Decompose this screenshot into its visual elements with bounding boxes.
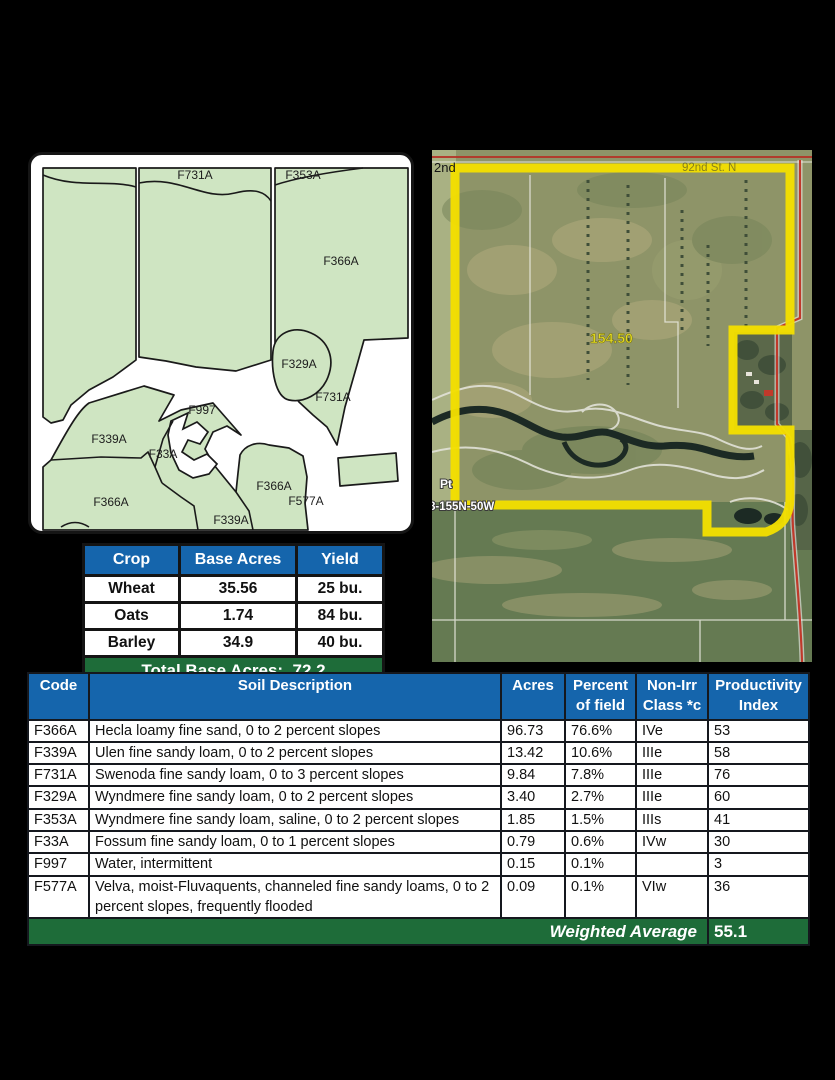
section-township-range-label: 8-155N-50W (432, 501, 494, 513)
table-cell: 3 (708, 853, 809, 875)
table-cell (636, 853, 708, 875)
soil-code-label: F577A (288, 494, 323, 508)
crop-table-header-row: Crop Base Acres Yield (84, 545, 384, 576)
table-cell: IIIe (636, 742, 708, 764)
table-cell: Barley (84, 630, 180, 657)
table-cell: Wyndmere fine sandy loam, saline, 0 to 2… (89, 809, 501, 831)
soil-code-label: F339A (213, 513, 248, 527)
table-cell: 0.1% (565, 853, 636, 875)
table-row: Oats1.7484 bu. (84, 603, 384, 630)
soil-code-label: F33A (149, 447, 178, 461)
street-label-left: 2nd (434, 160, 456, 175)
table-cell: 2.7% (565, 786, 636, 808)
point-label: Pt (440, 477, 452, 491)
table-cell: 36 (708, 876, 809, 919)
crop-table-body: Wheat35.5625 bu.Oats1.7484 bu.Barley34.9… (84, 576, 384, 657)
table-cell: 76.6% (565, 720, 636, 742)
table-row: F329AWyndmere fine sandy loam, 0 to 2 pe… (28, 786, 809, 808)
table-cell: Oats (84, 603, 180, 630)
soil-table-body: F366AHecla loamy fine sand, 0 to 2 perce… (28, 720, 809, 919)
table-row: F33AFossum fine sandy loam, 0 to 1 perce… (28, 831, 809, 853)
weighted-average-row: Weighted Average 55.1 (28, 918, 809, 945)
table-cell: IVe (636, 720, 708, 742)
table-cell: F997 (28, 853, 89, 875)
soil-code-label: F997 (188, 403, 216, 417)
table-cell: 60 (708, 786, 809, 808)
table-cell: 35.56 (180, 576, 297, 603)
column-header: Yield (297, 545, 384, 576)
soil-code-label: F353A (285, 168, 320, 182)
table-cell: 30 (708, 831, 809, 853)
table-cell: 0.79 (501, 831, 565, 853)
soil-map-panel: F731A F353A F366A F329A F731A F997 F339A… (28, 152, 414, 534)
soil-polygon (338, 453, 398, 486)
table-cell: 1.85 (501, 809, 565, 831)
column-header: Non-Irr Class *c (636, 673, 708, 720)
table-cell: F339A (28, 742, 89, 764)
red-barn (764, 390, 773, 396)
table-row: F353AWyndmere fine sandy loam, saline, 0… (28, 809, 809, 831)
table-cell: 0.09 (501, 876, 565, 919)
report-page: F731A F353A F366A F329A F731A F997 F339A… (0, 0, 835, 1080)
table-cell: F33A (28, 831, 89, 853)
soil-table-header-row: Code Soil Description Acres Percent of f… (28, 673, 809, 720)
table-cell: Fossum fine sandy loam, 0 to 1 percent s… (89, 831, 501, 853)
column-header: Crop (84, 545, 180, 576)
table-cell: IIIe (636, 764, 708, 786)
weighted-average-value: 55.1 (708, 918, 809, 945)
table-cell: F329A (28, 786, 89, 808)
soil-map-svg: F731A F353A F366A F329A F731A F997 F339A… (31, 155, 411, 531)
table-cell: 53 (708, 720, 809, 742)
table-row: F339AUlen fine sandy loam, 0 to 2 percen… (28, 742, 809, 764)
table-cell: IIIe (636, 786, 708, 808)
table-cell: Velva, moist-Fluvaquents, channeled fine… (89, 876, 501, 919)
table-cell: 34.9 (180, 630, 297, 657)
column-header: Productivity Index (708, 673, 809, 720)
street-label-top: 92nd St. N (682, 162, 736, 174)
table-row: F997Water, intermittent0.150.1%3 (28, 853, 809, 875)
column-header: Soil Description (89, 673, 501, 720)
table-cell: 40 bu. (297, 630, 384, 657)
soil-polygon (139, 168, 271, 371)
column-header: Percent of field (565, 673, 636, 720)
column-header: Acres (501, 673, 565, 720)
soil-polygon (43, 168, 136, 423)
table-cell: 25 bu. (297, 576, 384, 603)
table-row: Barley34.940 bu. (84, 630, 384, 657)
table-row: F577AVelva, moist-Fluvaquents, channeled… (28, 876, 809, 919)
acreage-label: 154.50 (590, 330, 633, 346)
table-cell: 0.15 (501, 853, 565, 875)
soil-code-label: F366A (256, 479, 291, 493)
aerial-svg: 2nd 92nd St. N 154.50 Pt 8-155N-50W (432, 150, 812, 662)
soil-code-label: F366A (93, 495, 128, 509)
table-cell: 7.8% (565, 764, 636, 786)
soil-code-label: F366A (323, 254, 358, 268)
soil-code-label: F731A (315, 390, 350, 404)
table-row: Wheat35.5625 bu. (84, 576, 384, 603)
table-cell: IVw (636, 831, 708, 853)
table-cell: 9.84 (501, 764, 565, 786)
column-header: Base Acres (180, 545, 297, 576)
soil-code-label: F329A (281, 357, 316, 371)
crop-base-acres-table: Crop Base Acres Yield Wheat35.5625 bu.Oa… (82, 543, 385, 687)
table-cell: 1.74 (180, 603, 297, 630)
table-cell: 13.42 (501, 742, 565, 764)
table-cell: Swenoda fine sandy loam, 0 to 3 percent … (89, 764, 501, 786)
table-cell: Wyndmere fine sandy loam, 0 to 2 percent… (89, 786, 501, 808)
table-cell: 1.5% (565, 809, 636, 831)
table-cell: F577A (28, 876, 89, 919)
table-row: F731ASwenoda fine sandy loam, 0 to 3 per… (28, 764, 809, 786)
weighted-average-label: Weighted Average (28, 918, 708, 945)
table-cell: IIIs (636, 809, 708, 831)
table-cell: 41 (708, 809, 809, 831)
farm-building (746, 372, 752, 376)
table-cell: Hecla loamy fine sand, 0 to 2 percent sl… (89, 720, 501, 742)
table-cell: Water, intermittent (89, 853, 501, 875)
farm-building (754, 380, 759, 384)
table-cell: F366A (28, 720, 89, 742)
table-cell: 76 (708, 764, 809, 786)
soil-description-table: Code Soil Description Acres Percent of f… (27, 672, 810, 946)
table-cell: 84 bu. (297, 603, 384, 630)
table-cell: F731A (28, 764, 89, 786)
column-header: Code (28, 673, 89, 720)
table-cell: 3.40 (501, 786, 565, 808)
table-cell: 58 (708, 742, 809, 764)
table-cell: 10.6% (565, 742, 636, 764)
table-row: F366AHecla loamy fine sand, 0 to 2 perce… (28, 720, 809, 742)
table-cell: Wheat (84, 576, 180, 603)
soil-code-label: F731A (177, 168, 212, 182)
table-cell: 0.6% (565, 831, 636, 853)
table-cell: 0.1% (565, 876, 636, 919)
table-cell: F353A (28, 809, 89, 831)
aerial-photo: 2nd 92nd St. N 154.50 Pt 8-155N-50W (432, 150, 812, 662)
soil-code-label: F339A (91, 432, 126, 446)
table-cell: Ulen fine sandy loam, 0 to 2 percent slo… (89, 742, 501, 764)
table-cell: VIw (636, 876, 708, 919)
table-cell: 96.73 (501, 720, 565, 742)
